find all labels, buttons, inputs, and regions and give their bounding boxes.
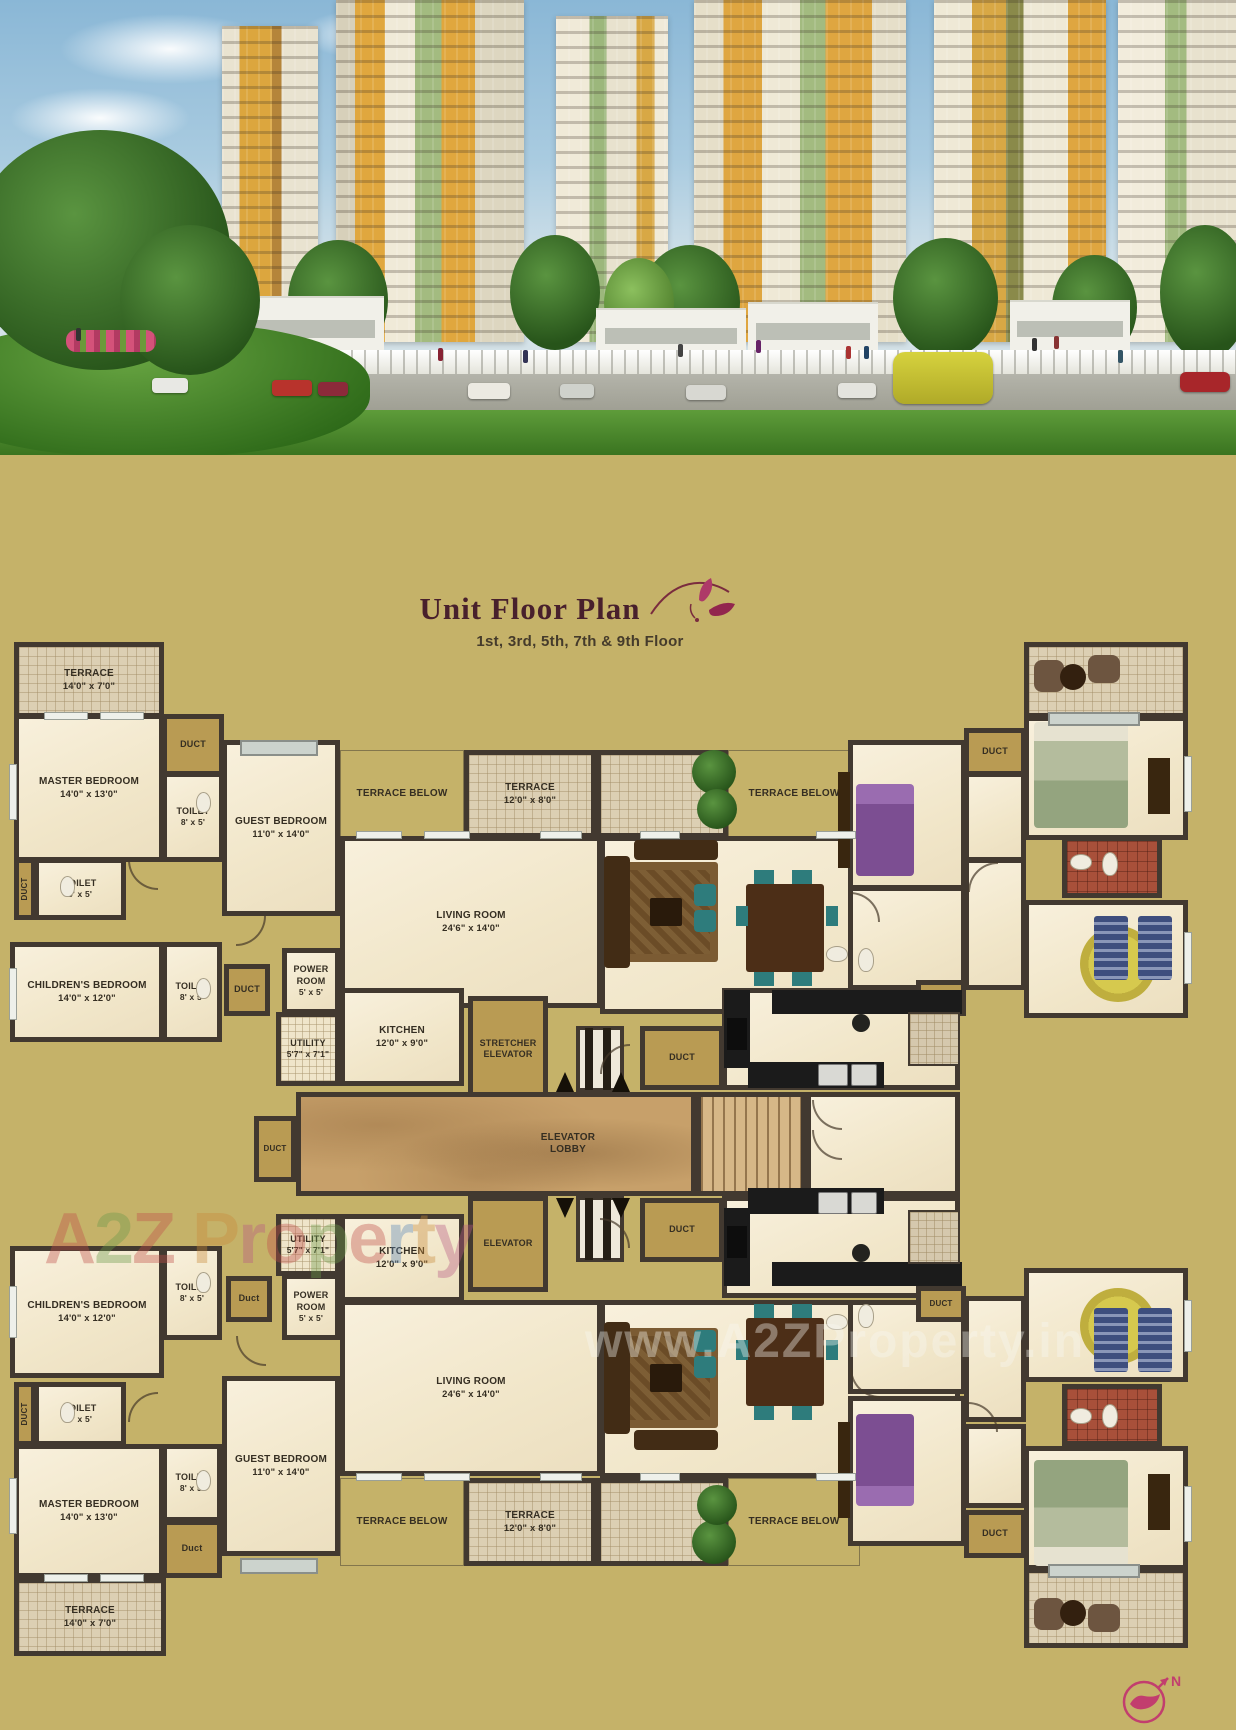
- window: [640, 1473, 680, 1481]
- kitchen-counter: [772, 1262, 962, 1286]
- wardrobe: [1148, 1474, 1170, 1530]
- room-label: CHILDREN'S BEDROOM: [27, 980, 146, 993]
- chair: [792, 972, 812, 986]
- room-label: GUEST BEDROOM: [235, 1454, 327, 1467]
- wardrobe: [838, 1422, 850, 1518]
- shower: [908, 1012, 960, 1066]
- chair: [736, 906, 748, 926]
- room-terrace-tl: TERRACE14'0" x 7'0": [14, 642, 164, 718]
- bed-twin: [1138, 1308, 1172, 1372]
- room-kitchen-t: KITCHEN12'0" x 9'0": [340, 988, 464, 1086]
- room-living-room-b: LIVING ROOM24'6" x 14'0": [340, 1300, 602, 1476]
- room-label: ELEVATOR LOBBY: [528, 1132, 608, 1157]
- window: [9, 764, 17, 820]
- toilet: [1102, 1404, 1118, 1428]
- watermark-letter: t: [412, 1199, 434, 1279]
- terrace-chair: [1088, 655, 1120, 683]
- window: [240, 1558, 318, 1574]
- window: [9, 968, 17, 1020]
- window: [424, 831, 470, 839]
- room-dims: 5'7" x 7'1": [287, 1049, 329, 1060]
- room-label: DUCT: [180, 739, 206, 750]
- room-duct-t1: DUCT: [162, 714, 224, 776]
- room-toilet-b2: TOILET8' x 5': [34, 1382, 126, 1446]
- room-label: POWER ROOM: [287, 1290, 335, 1313]
- door-arc: [600, 1218, 630, 1248]
- window: [356, 1473, 402, 1481]
- room-dims: 14'0" x 7'0": [63, 680, 115, 692]
- sink: [1070, 1408, 1092, 1424]
- room-label: DUCT: [929, 1299, 952, 1309]
- sink: [851, 1192, 877, 1214]
- washing-machine: [852, 1014, 870, 1032]
- toilet: [196, 1470, 211, 1491]
- window: [9, 1478, 17, 1534]
- room-label: DUCT: [20, 877, 30, 900]
- room-label: STRETCHER ELEVATOR: [473, 1038, 543, 1061]
- room-dims: 24'6" x 14'0": [442, 922, 500, 934]
- sink: [1070, 854, 1092, 870]
- page: Unit Floor Plan 1st, 3rd, 5th, 7th & 9th…: [0, 0, 1236, 1730]
- window: [100, 1574, 144, 1582]
- room-duct-b4: DUCT: [964, 1510, 1026, 1558]
- bed-twin: [1138, 916, 1172, 980]
- terrace-tree: [692, 750, 736, 794]
- room-label: MASTER BEDROOM: [39, 1499, 139, 1512]
- hob: [727, 1018, 747, 1050]
- room-dims: 5' x 5': [299, 987, 323, 998]
- room-dims: 14'0" x 13'0": [60, 1511, 118, 1523]
- room-duct-b3: Duct: [162, 1520, 222, 1578]
- window: [1184, 756, 1192, 812]
- room-stairs: [696, 1092, 806, 1196]
- room-toilet-t3: TOILET8' x 5': [162, 942, 222, 1042]
- room-duct-t3: DUCT: [224, 964, 270, 1016]
- window: [9, 1286, 17, 1338]
- dining-table: [746, 884, 824, 972]
- room-label: DUCT: [982, 746, 1008, 757]
- elevator-arrow-down: [612, 1198, 630, 1218]
- svg-text:N: N: [1171, 1673, 1181, 1689]
- terrace-tree: [697, 789, 737, 829]
- window: [1048, 1564, 1140, 1578]
- room-elevator-lobby: ELEVATOR LOBBY: [296, 1092, 696, 1196]
- watermark-letter: Z: [132, 1199, 174, 1279]
- window: [44, 1574, 88, 1582]
- chair: [792, 870, 812, 884]
- toilet: [858, 948, 874, 972]
- room-toilet-t1: TOILET8' x 5': [162, 772, 224, 862]
- room-toilet-b3: TOILET8' x 5': [162, 1444, 222, 1522]
- bed-purple: [856, 1414, 914, 1506]
- bed-sage: [1034, 1460, 1128, 1566]
- bed-twin: [1094, 1308, 1128, 1372]
- floor-plan: A2Z Property www.A2ZProperty.in N LIVING…: [0, 0, 1236, 1730]
- window: [540, 831, 582, 839]
- sofa: [634, 1430, 718, 1450]
- room-bath-t2: [964, 772, 1026, 862]
- room-master-bedroom-t: MASTER BEDROOM14'0" x 13'0": [14, 714, 164, 862]
- room-power-room-t: POWER ROOM5' x 5': [282, 948, 340, 1014]
- armchair: [694, 910, 716, 932]
- washing-machine: [852, 1244, 870, 1262]
- watermark-brand: A2Z Property: [44, 1198, 472, 1280]
- room-dims: 14'0" x 7'0": [64, 1617, 116, 1629]
- page-subtitle: 1st, 3rd, 5th, 7th & 9th Floor: [0, 633, 1160, 650]
- terrace-tree: [692, 1520, 736, 1564]
- shower: [908, 1210, 960, 1264]
- title-block: Unit Floor Plan 1st, 3rd, 5th, 7th & 9th…: [0, 588, 1160, 650]
- room-power-room-b: POWER ROOM5' x 5': [282, 1274, 340, 1340]
- room-label: DUCT: [263, 1144, 286, 1154]
- window: [1184, 932, 1192, 984]
- door-arc: [236, 1336, 266, 1366]
- window: [540, 1473, 582, 1481]
- room-label: Duct: [182, 1543, 203, 1554]
- elevator-door: [585, 1198, 593, 1260]
- kitchen-counter: [772, 990, 962, 1014]
- room-duct-t2: DUCT: [14, 858, 36, 920]
- toilet: [1102, 852, 1118, 876]
- room-label: DUCT: [20, 1402, 30, 1425]
- room-label: TERRACE: [65, 1605, 115, 1618]
- room-label: LIVING ROOM: [436, 910, 505, 923]
- room-label: Duct: [239, 1293, 260, 1304]
- leaf-flourish-icon: [645, 570, 741, 630]
- window: [100, 712, 144, 720]
- hob: [727, 1226, 747, 1258]
- room-bath-b2: [964, 1424, 1026, 1508]
- watermark-letter: r: [238, 1199, 264, 1279]
- coffee-table: [650, 898, 682, 926]
- terrace-table: [1060, 1600, 1086, 1626]
- watermark-letter: e: [348, 1199, 386, 1279]
- chair: [826, 906, 838, 926]
- toilet: [60, 876, 75, 897]
- door-arc: [128, 1392, 158, 1422]
- bed-twin: [1094, 916, 1128, 980]
- watermark-letter: A: [44, 1199, 94, 1279]
- room-label: TERRACE BELOW: [749, 788, 840, 801]
- room-duct-b6: DUCT: [640, 1198, 724, 1262]
- terrace-tree: [697, 1485, 737, 1525]
- door-arc: [236, 916, 266, 946]
- window: [1184, 1300, 1192, 1352]
- chair: [792, 1406, 812, 1420]
- bed-sage: [1034, 722, 1128, 828]
- room-dims: 5' x 5': [299, 1313, 323, 1324]
- watermark-letter: 2: [94, 1199, 132, 1279]
- room-label: DUCT: [669, 1052, 695, 1063]
- room-label: TERRACE: [64, 668, 114, 681]
- room-master-bedroom-b: MASTER BEDROOM14'0" x 13'0": [14, 1444, 164, 1578]
- room-label: TERRACE BELOW: [357, 788, 448, 801]
- sink: [826, 946, 848, 962]
- room-terrace-below-tl: TERRACE BELOW: [340, 750, 464, 838]
- room-dims: 12'0" x 8'0": [504, 1522, 556, 1534]
- room-label: CHILDREN'S BEDROOM: [27, 1300, 146, 1313]
- room-label: ELEVATOR: [483, 1238, 532, 1249]
- watermark-letter: P: [192, 1199, 238, 1279]
- room-toilet-t2: TOILET8' x 5': [34, 858, 126, 920]
- room-living-room-t: LIVING ROOM24'6" x 14'0": [340, 836, 602, 1008]
- sofa: [634, 840, 718, 860]
- terrace-table: [1060, 664, 1086, 690]
- room-duct-c1: DUCT: [254, 1116, 296, 1182]
- room-dims: 11'0" x 14'0": [252, 828, 309, 840]
- room-dims: 24'6" x 14'0": [442, 1388, 500, 1400]
- window: [240, 740, 318, 756]
- room-guest-bedroom-b: GUEST BEDROOM11'0" x 14'0": [222, 1376, 340, 1556]
- room-label: KITCHEN: [379, 1025, 425, 1038]
- window: [356, 831, 402, 839]
- toilet: [196, 792, 211, 813]
- window: [1184, 1486, 1192, 1542]
- window: [44, 712, 88, 720]
- room-dims: 8' x 5': [181, 817, 205, 828]
- room-children-bedroom-t: CHILDREN'S BEDROOM14'0" x 12'0": [10, 942, 164, 1042]
- room-label: DUCT: [669, 1224, 695, 1235]
- room-duct-b2: DUCT: [14, 1382, 36, 1446]
- compass-icon: N: [1118, 1668, 1188, 1728]
- elevator-arrow-up: [612, 1072, 630, 1092]
- room-label: MASTER BEDROOM: [39, 776, 139, 789]
- room-duct-t4: DUCT: [964, 728, 1026, 776]
- room-guest-bedroom-t: GUEST BEDROOM11'0" x 14'0": [222, 740, 340, 916]
- room-dims: 8' x 5': [180, 1293, 204, 1304]
- bed-purple: [856, 784, 914, 876]
- watermark-letter: y: [434, 1199, 472, 1279]
- room-label: DUCT: [234, 984, 260, 995]
- elevator-arrow-up: [556, 1072, 574, 1092]
- chair: [754, 870, 774, 884]
- sink: [818, 1064, 848, 1086]
- window: [640, 831, 680, 839]
- room-terrace-bl: TERRACE14'0" x 7'0": [14, 1578, 166, 1656]
- room-label: TERRACE BELOW: [749, 1516, 840, 1529]
- sofa: [604, 856, 630, 968]
- watermark-letter: r: [386, 1199, 412, 1279]
- window: [816, 1473, 856, 1481]
- room-dims: 12'0" x 8'0": [504, 794, 556, 806]
- door-arc: [128, 860, 158, 890]
- watermark-url: www.A2ZProperty.in: [585, 1314, 1085, 1369]
- chair: [754, 972, 774, 986]
- room-duct-b1: Duct: [226, 1276, 272, 1322]
- window: [424, 1473, 470, 1481]
- room-stretcher-elevator: STRETCHER ELEVATOR: [468, 996, 548, 1102]
- room-utility-t: UTILITY5'7" x 7'1": [276, 1012, 340, 1086]
- room-terrace-below-bl: TERRACE BELOW: [340, 1478, 464, 1566]
- elevator-door: [585, 1028, 593, 1090]
- watermark-letter: [174, 1199, 192, 1279]
- wardrobe: [838, 772, 850, 868]
- window: [816, 831, 856, 839]
- room-terrace-b-center: TERRACE12'0" x 8'0": [464, 1478, 596, 1566]
- room-dims: 11'0" x 14'0": [252, 1466, 309, 1478]
- room-terrace-t-center: TERRACE12'0" x 8'0": [464, 750, 596, 838]
- elevator-arrow-down: [556, 1198, 574, 1218]
- watermark-letter: o: [264, 1199, 306, 1279]
- room-label: UTILITY: [290, 1038, 325, 1049]
- page-title: Unit Floor Plan: [419, 591, 640, 627]
- armchair: [694, 884, 716, 906]
- room-label: TERRACE: [505, 782, 555, 795]
- room-label: POWER ROOM: [287, 964, 335, 987]
- room-elevator-b: ELEVATOR: [468, 1196, 548, 1292]
- room-label: DUCT: [982, 1528, 1008, 1539]
- room-dims: 12'0" x 9'0": [376, 1037, 428, 1049]
- room-dims: 14'0" x 13'0": [60, 788, 118, 800]
- room-duct-t6: DUCT: [640, 1026, 724, 1090]
- terrace-chair: [1088, 1604, 1120, 1632]
- room-dims: 14'0" x 12'0": [58, 992, 116, 1004]
- watermark-letter: p: [306, 1199, 348, 1279]
- toilet: [196, 978, 211, 999]
- room-label: TERRACE BELOW: [357, 1516, 448, 1529]
- sink: [851, 1064, 877, 1086]
- toilet: [60, 1402, 75, 1423]
- window: [1048, 712, 1140, 726]
- room-label: TERRACE: [505, 1510, 555, 1523]
- wardrobe: [1148, 758, 1170, 814]
- sink: [818, 1192, 848, 1214]
- room-dims: 14'0" x 12'0": [58, 1312, 116, 1324]
- room-label: LIVING ROOM: [436, 1376, 505, 1389]
- room-label: GUEST BEDROOM: [235, 816, 327, 829]
- chair: [754, 1406, 774, 1420]
